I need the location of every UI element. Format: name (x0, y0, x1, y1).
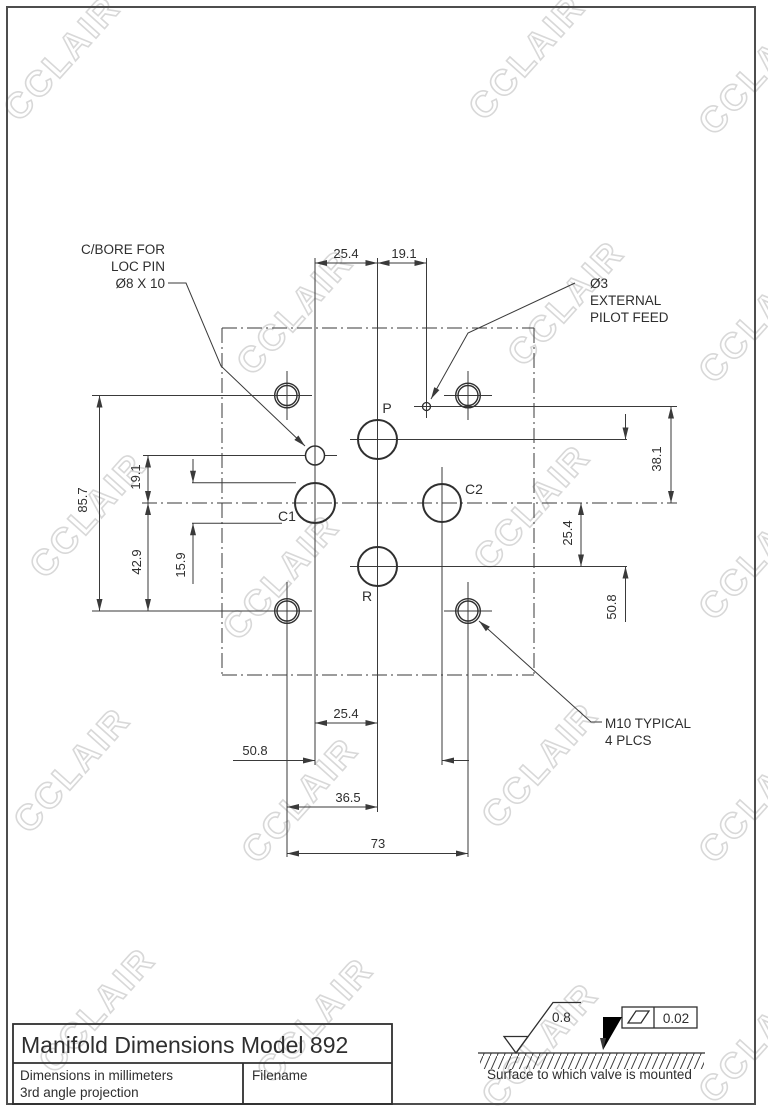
manifold-technical-drawing: P C1 C2 R 25.4 19.1 85.7 19.1 42.9 15.9 … (0, 0, 768, 1109)
dim-bottom-73: 73 (371, 836, 385, 851)
dim-right-50-8: 50.8 (604, 594, 619, 619)
port-c1-label: C1 (278, 508, 296, 524)
m10-line1: M10 TYPICAL (605, 716, 692, 731)
flatness-icon (628, 1011, 649, 1023)
roughness-symbol: 0.8 (504, 1003, 581, 1054)
pilot-line2: EXTERNAL (590, 293, 662, 308)
roughness-value: 0.8 (552, 1010, 571, 1025)
dim-right-25-4: 25.4 (560, 520, 575, 545)
dim-bottom-50-8: 50.8 (242, 743, 267, 758)
manifold-outline (142, 328, 677, 675)
port-p-label: P (382, 400, 391, 416)
callout-pilot-feed: Ø3 EXTERNAL PILOT FEED (590, 276, 669, 325)
dim-right-38-1: 38.1 (649, 446, 664, 471)
title-block: Manifold Dimensions Model 892 Dimensions… (13, 1024, 392, 1104)
port-c2-label: C2 (465, 481, 483, 497)
flatness-value: 0.02 (663, 1011, 689, 1026)
callout-m10: M10 TYPICAL 4 PLCS (605, 716, 692, 748)
port-r-label: R (362, 588, 372, 604)
page-border (7, 7, 755, 1104)
surface-note: 0.8 0.02 Surface to which valve is mount… (478, 1003, 705, 1083)
dim-top-19-1: 19.1 (391, 246, 416, 261)
callout-cbore: C/BORE FOR LOC PIN Ø8 X 10 (81, 242, 165, 291)
cbore-line1: C/BORE FOR (81, 242, 165, 257)
drawing-page: CCLAIRCCLAIRCCLAIRCCLAIRCCLAIRCCLAIRCCLA… (0, 0, 768, 1109)
cbore-line2: LOC PIN (111, 259, 165, 274)
dim-left-42-9: 42.9 (129, 549, 144, 574)
units-note: Dimensions in millimeters (20, 1068, 173, 1083)
m10-line2: 4 PLCS (605, 733, 652, 748)
filename-label: Filename (252, 1068, 308, 1083)
surface-caption: Surface to which valve is mounted (487, 1067, 692, 1082)
drawing-title: Manifold Dimensions Model 892 (21, 1032, 348, 1058)
dim-top-25-4: 25.4 (333, 246, 358, 261)
dim-left-15-9: 15.9 (173, 552, 188, 577)
dim-left-19-1: 19.1 (128, 464, 143, 489)
cbore-line3: Ø8 X 10 (115, 276, 165, 291)
dim-bottom-25-4: 25.4 (333, 706, 358, 721)
projection-note: 3rd angle projection (20, 1085, 139, 1100)
pilot-line3: PILOT FEED (590, 310, 669, 325)
flatness-callout: 0.02 (603, 1007, 697, 1050)
dim-bottom-36-5: 36.5 (335, 790, 360, 805)
dim-left-85-7: 85.7 (75, 487, 90, 512)
pilot-line1: Ø3 (590, 276, 608, 291)
